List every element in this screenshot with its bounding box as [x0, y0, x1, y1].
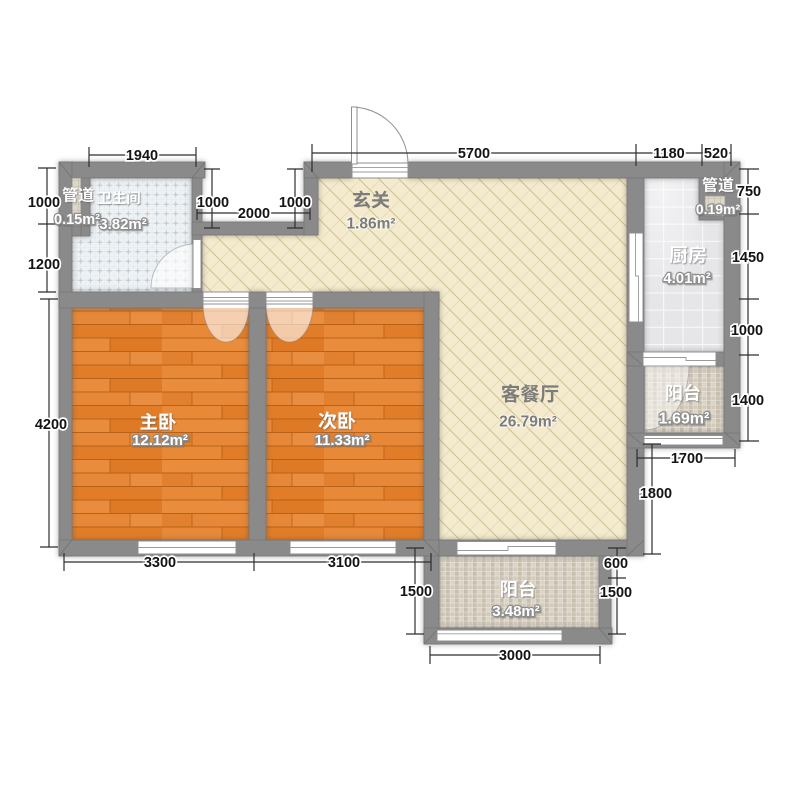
svg-text:520: 520: [704, 146, 728, 162]
svg-text:11.33m²: 11.33m²: [314, 432, 369, 449]
svg-text:26.79m²: 26.79m²: [499, 413, 557, 430]
svg-text:5700: 5700: [458, 146, 490, 162]
svg-text:600: 600: [604, 556, 628, 572]
svg-text:1000: 1000: [197, 195, 229, 211]
svg-text:1450: 1450: [732, 250, 764, 266]
svg-text:1400: 1400: [732, 393, 764, 409]
svg-text:1180: 1180: [653, 146, 684, 162]
svg-text:4.01m²: 4.01m²: [663, 270, 711, 287]
svg-text:1200: 1200: [28, 257, 60, 273]
svg-text:12.12m²: 12.12m²: [132, 432, 188, 449]
svg-text:3.48m²: 3.48m²: [492, 603, 540, 620]
svg-text:1000: 1000: [279, 195, 311, 211]
svg-text:1.86m²: 1.86m²: [346, 215, 395, 232]
svg-text:750: 750: [737, 184, 761, 200]
svg-text:0.19m²: 0.19m²: [696, 201, 741, 217]
svg-text:3100: 3100: [328, 555, 360, 571]
svg-text:3000: 3000: [499, 648, 531, 664]
svg-text:1940: 1940: [126, 148, 158, 164]
svg-text:0.15m²: 0.15m²: [54, 212, 100, 228]
svg-text:4200: 4200: [35, 417, 67, 433]
svg-text:1500: 1500: [600, 585, 632, 601]
svg-text:1500: 1500: [400, 584, 432, 600]
svg-text:1000: 1000: [731, 323, 763, 339]
svg-text:1700: 1700: [671, 451, 703, 467]
svg-text:3.82m²: 3.82m²: [99, 216, 147, 233]
svg-text:1000: 1000: [28, 195, 60, 211]
svg-text:2000: 2000: [238, 206, 270, 222]
svg-text:1800: 1800: [640, 486, 672, 502]
svg-text:1.69m²: 1.69m²: [659, 411, 710, 428]
svg-text:3300: 3300: [144, 555, 176, 571]
